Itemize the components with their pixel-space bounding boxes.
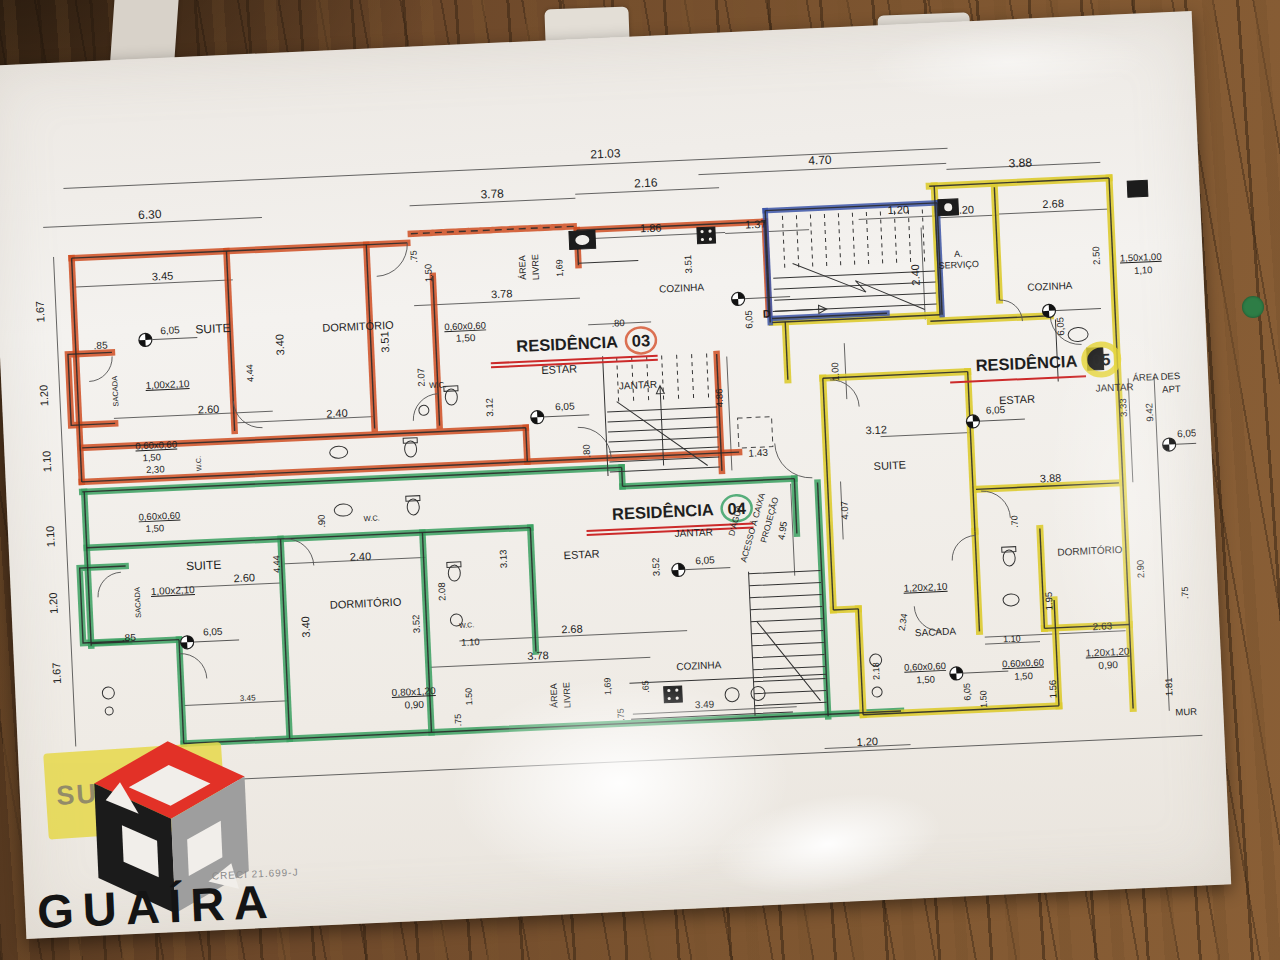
window-spec: 0,60x0,60 — [135, 439, 177, 452]
dimension-label: 4.44 — [245, 364, 256, 382]
window-spec: 1,50 — [1014, 670, 1033, 682]
dimension-label: 3.40 — [273, 334, 286, 356]
dimension-label: 3.12 — [483, 398, 495, 417]
window-spec: 0,60x0,60 — [904, 660, 946, 673]
dimension-label: .85 — [122, 632, 137, 644]
residence-name: RESIDÊNCIA — [612, 500, 715, 523]
dimension-label: 1,69 — [554, 259, 565, 277]
stove-icon — [664, 686, 683, 703]
dimension-label: 21.03 — [590, 146, 621, 161]
window-spec: 0,60x0,60 — [138, 509, 180, 522]
plan-drawing: RESIDÊNCIA03RESIDÊNCIA04RESIDÊNCIA05 21.… — [4, 46, 1211, 841]
window-spec: 0,60x0,60 — [1002, 656, 1044, 669]
dimension-label: 2.68 — [561, 622, 583, 635]
dimension-label: 1.50 — [978, 690, 989, 708]
residence-name: RESIDÊNCIA — [516, 332, 619, 355]
dimension-label: 3.33 — [1117, 398, 1129, 417]
dimension-label: 1.20 — [37, 385, 50, 407]
floor-plan-sheet: RESIDÊNCIA03RESIDÊNCIA04RESIDÊNCIA05 21.… — [0, 11, 1231, 939]
dimension-label: 3.45 — [152, 270, 174, 283]
sink-icon — [102, 687, 115, 700]
dimension-label: 1.37 — [745, 218, 767, 231]
dimension-label: 2.90 — [1134, 560, 1146, 579]
wall-ink-line — [72, 258, 82, 482]
room-label: DORMITÓRIO — [1057, 543, 1123, 558]
dimension-label: 1.67 — [34, 301, 47, 323]
dimension-label: 1.20 — [856, 735, 878, 748]
toilet-icon — [1002, 547, 1017, 567]
dimension-label: 2.40 — [909, 264, 922, 286]
dimension-label: 1.20 — [47, 592, 60, 614]
window-spec: 1,10 — [1134, 264, 1153, 276]
dimension-label: .90 — [316, 514, 328, 528]
dimension-label: 2.08 — [436, 582, 448, 601]
dimension-label: 1.10 — [40, 451, 53, 473]
dimension-label: 1.81 — [1163, 677, 1175, 696]
annotations-geometry — [738, 417, 773, 449]
residence-number: 03 — [631, 331, 650, 350]
dimension-label: 2.18 — [871, 662, 882, 680]
dimension-label: 2.60 — [233, 571, 255, 584]
dimension-label: 1.20 — [887, 203, 909, 216]
window-spec: 1,20x1,20 — [1085, 646, 1130, 659]
level-label: 6,05 — [1054, 317, 1066, 336]
dimension-label: .75 — [616, 708, 627, 721]
dimension-label: 3.88 — [1040, 471, 1062, 484]
level-label: 6,05 — [695, 554, 715, 566]
window-spec: 0,80x1,20 — [391, 685, 436, 698]
window-spec: 1,00x2,10 — [145, 378, 190, 391]
dimension-label: 2.34 — [897, 613, 910, 632]
door-label: D — [763, 307, 772, 319]
dimension-label: 6.30 — [138, 207, 162, 222]
annotation-label: APT — [1162, 383, 1181, 395]
level-marker-icon — [950, 665, 1009, 681]
dimension-label: 3.52 — [410, 614, 422, 633]
dimension-label: 3.12 — [865, 423, 887, 436]
room-label: ÁREA — [548, 683, 559, 708]
room-label: SUITE — [195, 321, 231, 337]
toilet-icon — [447, 562, 462, 582]
brand-watermark: GUAÍRA — [36, 874, 278, 939]
dimension-label: 1.86 — [640, 221, 662, 234]
room-label: SUITE — [873, 459, 906, 472]
dimension-label: 3.49 — [695, 698, 715, 710]
room-label: JANTAR — [674, 526, 713, 539]
dimension-label: 1.50 — [422, 264, 434, 283]
floor-plan-photo: { "colors": { "wood": "#6d482a", "sheet"… — [0, 0, 1280, 960]
dimension-label: 4.70 — [808, 153, 832, 168]
room-label: W.C. — [363, 513, 380, 523]
dimension-label: 9.42 — [1143, 403, 1155, 422]
window-spec: 0,90 — [1098, 659, 1118, 671]
dimension-label: 3.40 — [299, 616, 312, 638]
dimension-lines — [41, 138, 1202, 787]
dimension-label: 1.43 — [748, 447, 768, 459]
sink-icon — [334, 504, 353, 517]
dimension-label: 4.95 — [775, 520, 789, 540]
residence-number: 05 — [1092, 350, 1111, 369]
room-label: ESTAR — [563, 548, 599, 562]
dimension-label: 1.10 — [1003, 634, 1021, 645]
dimension-label: .75 — [1180, 587, 1191, 600]
dimension-label: 2.63 — [1092, 620, 1112, 632]
room-label: SUITE — [186, 558, 222, 574]
dimension-label: 1.50 — [464, 688, 475, 706]
window-spec: 1,50 — [145, 522, 164, 534]
dimension-label: 3.45 — [240, 693, 257, 703]
level-label: 6,05 — [160, 324, 180, 336]
residence-title: RESIDÊNCIA03 — [489, 327, 657, 368]
dimension-label: 3.51 — [378, 331, 391, 353]
window-spec: 2,30 — [146, 463, 165, 475]
residence-name: RESIDÊNCIA — [975, 352, 1078, 375]
dimension-label: 1.56 — [1047, 680, 1059, 699]
wall-ink-line — [72, 243, 408, 258]
dimension-label: 1.95 — [1043, 592, 1055, 611]
dimension-label: 3.88 — [1008, 155, 1032, 170]
room-label: COZINHA — [659, 281, 705, 294]
dimension-label: .75 — [453, 714, 464, 727]
annotation-label: ÁREA DES — [1132, 370, 1180, 383]
dimension-label: .70 — [1009, 515, 1020, 528]
sink-icon — [105, 707, 113, 715]
dimension-label: 2.50 — [1090, 246, 1102, 265]
dimension-label: 2.40 — [326, 407, 348, 420]
room-label: LIVRE — [530, 254, 541, 280]
level-label: 6,05 — [1177, 427, 1197, 439]
dimension-label: 3.51 — [682, 255, 694, 274]
water-tank-projection — [738, 417, 773, 449]
annotation-label: MUR — [1175, 706, 1197, 718]
room-label: JANTAR — [619, 379, 658, 392]
residence-title: RESIDÊNCIA05 — [949, 344, 1119, 383]
wall-ink-line — [622, 467, 623, 486]
sink-icon — [1068, 327, 1089, 342]
dimension-label: 1.20 — [952, 203, 974, 216]
window-spec: 1,50 — [142, 451, 161, 463]
sink-icon — [329, 446, 348, 459]
dimension-label: 1.67 — [50, 662, 63, 684]
residence-labels: RESIDÊNCIA03RESIDÊNCIA04RESIDÊNCIA05 — [489, 306, 1125, 539]
room-label: COZINHA — [1027, 280, 1073, 293]
dimension-label: .65 — [640, 680, 651, 693]
level-marker-icon — [1042, 302, 1101, 318]
dimension-label: 4.86 — [713, 388, 725, 407]
room-label: SACADA — [110, 376, 120, 407]
level-label: 6,05 — [743, 310, 755, 329]
dimension-label: 1.00 — [829, 362, 841, 381]
dimension-label: 2.60 — [198, 403, 220, 416]
dimension-label: 3.78 — [491, 287, 513, 300]
sink-icon — [1003, 594, 1020, 607]
window-spec: 0,90 — [404, 699, 424, 711]
dimension-label: .80 — [581, 444, 593, 458]
dimension-label: 3.78 — [480, 186, 504, 201]
toilet-icon — [406, 496, 421, 516]
room-label: SERVIÇO — [938, 259, 979, 271]
toilet-icon — [403, 438, 418, 458]
window-spec: 1,50 — [456, 332, 476, 344]
room-label: A. — [954, 249, 963, 259]
dimension-label: 1.10 — [461, 636, 480, 648]
window-spec: 0,60x0,60 — [444, 319, 486, 332]
level-markers — [138, 271, 1212, 716]
green-dot-sticker — [1242, 296, 1264, 318]
stove-icon — [697, 227, 716, 244]
room-label: ESTAR — [541, 362, 577, 376]
sink-icon — [725, 687, 740, 702]
window-spec: 1,20x2,10 — [903, 581, 948, 594]
window-spec: 1,00x2,10 — [151, 584, 196, 597]
window-spec: 1,50x1,00 — [1120, 251, 1162, 264]
room-label: ÁREA — [517, 255, 528, 280]
dimension-label: 3.13 — [497, 549, 509, 568]
level-label: 6,05 — [555, 400, 575, 412]
sink-icon — [872, 687, 882, 697]
dimension-label: 2.68 — [1042, 197, 1064, 210]
dimension-label: 2.16 — [634, 175, 658, 190]
dimension-label: 2.40 — [349, 550, 371, 563]
dimension-label: .80 — [611, 317, 625, 329]
room-label: SACADA — [915, 625, 957, 638]
dimension-label: 4.07 — [838, 501, 850, 520]
room-label: LIVRE — [561, 682, 572, 708]
dimension-label: 2.07 — [415, 368, 427, 387]
window-spec: 1,50 — [916, 673, 935, 685]
dimension-label: 3.52 — [650, 557, 662, 576]
dimension-label: 1,69 — [602, 677, 613, 695]
room-label: W.C. — [429, 380, 447, 390]
level-label: 6,05 — [962, 683, 973, 701]
room-label: W.C. — [195, 456, 203, 472]
dimension-label: 4.44 — [271, 555, 282, 573]
room-label: JANTAR — [1095, 381, 1134, 394]
laundry-icon — [1127, 180, 1148, 197]
room-label: SACADA — [133, 587, 143, 618]
room-label: W.C. — [459, 621, 475, 629]
dimension-label: .75 — [409, 250, 420, 263]
level-label: 6,05 — [985, 404, 1005, 416]
level-marker-icon — [731, 290, 790, 306]
level-label: 6,05 — [203, 626, 223, 638]
room-label: COZINHA — [676, 659, 722, 672]
dimension-label: .85 — [93, 340, 108, 352]
dimension-label: 3.78 — [527, 649, 549, 662]
dimension-label: 1.10 — [44, 525, 57, 547]
room-label: DORMITÓRIO — [330, 596, 402, 611]
sink-icon — [419, 405, 429, 415]
